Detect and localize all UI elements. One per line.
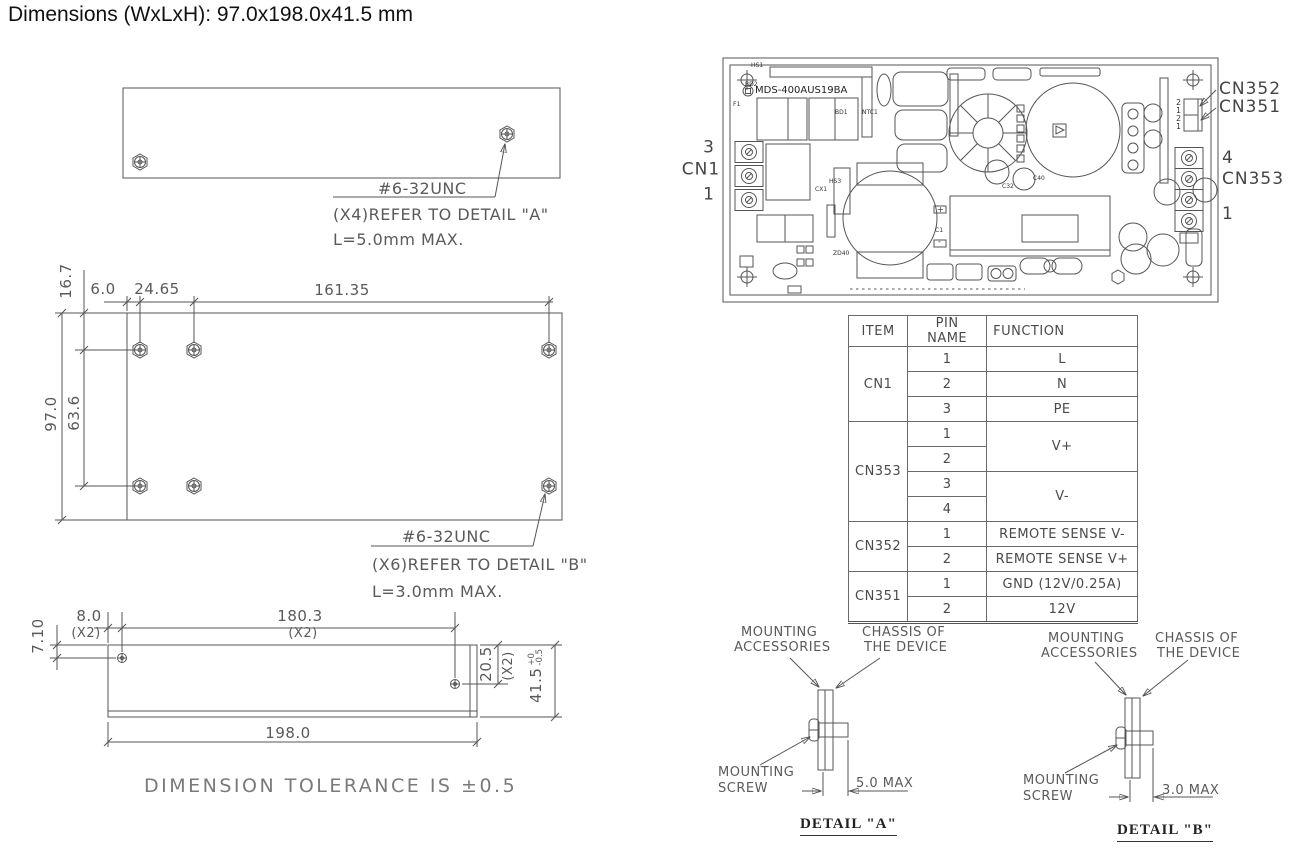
dim-qty-b: (X2) bbox=[288, 627, 317, 641]
pin-cell: 1 bbox=[908, 422, 987, 447]
pcb-label-cx1: CX1 bbox=[815, 187, 827, 194]
dim-hole-gap: 24.65 bbox=[134, 281, 179, 298]
function-cell: REMOTE SENSE V- bbox=[987, 522, 1138, 547]
pin-cell: 1 bbox=[908, 347, 987, 372]
cn351-label: CN351 bbox=[1219, 98, 1281, 117]
pcb-silkscreen-model: MDS-400AUS19BA bbox=[755, 85, 847, 96]
plan-view-drawing bbox=[55, 270, 562, 546]
top-view-refer-note: (X4)REFER TO DETAIL "A" bbox=[333, 206, 549, 224]
dim-hole-row-gap: 63.6 bbox=[66, 395, 83, 430]
pin-cell: 1 bbox=[908, 522, 987, 547]
dim-hole-top-offset: 16.7 bbox=[58, 263, 75, 298]
screw-hole-icon bbox=[542, 478, 556, 494]
detail-a-caption: DETAIL "A" bbox=[800, 816, 897, 836]
detail-a-max-dim: 5.0 MAX bbox=[856, 777, 913, 791]
detail-a-screw-line2: SCREW bbox=[718, 782, 768, 796]
detail-b-screw-line1: MOUNTING bbox=[1023, 774, 1099, 788]
pin-cell: 2 bbox=[908, 447, 987, 472]
col-header-function: FUNCTION bbox=[987, 316, 1138, 347]
cn1-label: CN1 bbox=[682, 161, 720, 180]
cn1-pin-bottom-label: 1 bbox=[703, 186, 715, 205]
pcb-label-bd2: BD2 bbox=[745, 82, 758, 89]
pcb-polarity-plus: + bbox=[937, 206, 944, 215]
detail-b-screw-line2: SCREW bbox=[1023, 790, 1073, 804]
detail-b-chassis-line1: CHASSIS OF bbox=[1155, 632, 1238, 646]
dim-screw-span: 180.3 bbox=[277, 608, 322, 625]
cn352-label: CN352 bbox=[1219, 80, 1281, 99]
plan-view-refer-note: (X6)REFER TO DETAIL "B" bbox=[372, 556, 588, 574]
detail-b-max-dim: 3.0 MAX bbox=[1162, 784, 1219, 798]
mounting-hole-icon bbox=[1183, 70, 1203, 90]
detail-b-chassis-line2: THE DEVICE bbox=[1157, 647, 1240, 661]
detail-a-chassis-line1: CHASSIS OF bbox=[862, 626, 945, 640]
screw-hole-icon bbox=[133, 154, 147, 170]
col-header-item: ITEM bbox=[849, 316, 908, 347]
item-cn352: CN352 bbox=[849, 522, 908, 572]
pin-cell: 2 bbox=[908, 547, 987, 572]
dim-qty-c: (X2) bbox=[502, 651, 516, 680]
dim-screw-top-offset: 7.10 bbox=[30, 618, 47, 653]
function-cell: PE bbox=[987, 397, 1138, 422]
function-cell: 12V bbox=[987, 597, 1138, 623]
pcb-label-f1: F1 bbox=[733, 102, 740, 109]
tolerance-note: DIMENSION TOLERANCE IS ±0.5 bbox=[144, 776, 517, 797]
col-header-pin-name: PIN NAME bbox=[908, 316, 987, 347]
detail-a-accessories-line1: MOUNTING bbox=[741, 626, 817, 640]
dim-body-height-tolerance: +0 -0.5 bbox=[528, 649, 544, 666]
dim-screw-height-offset: 20.5 bbox=[478, 646, 495, 681]
pin-function-table: ITEM PIN NAME FUNCTION CN1 1 L 2 N 3 PE … bbox=[848, 315, 1138, 624]
pin-cell: 3 bbox=[908, 397, 987, 422]
pin-cell: 2 bbox=[908, 372, 987, 397]
detail-b-accessories-line1: MOUNTING bbox=[1048, 632, 1124, 646]
pcb-label-c32: C32 bbox=[1002, 184, 1014, 191]
screw-hole-icon bbox=[187, 478, 201, 494]
item-cn1: CN1 bbox=[849, 347, 908, 422]
pcb-label-bd1: BD1 bbox=[835, 110, 848, 117]
pcb-label-hs1: HS1 bbox=[751, 63, 763, 70]
pcb-label-ntc1: NTC1 bbox=[862, 110, 878, 117]
screw-hole-icon bbox=[187, 342, 201, 358]
function-cell: V- bbox=[987, 472, 1138, 522]
pin-cell: 2 bbox=[908, 597, 987, 623]
cn353-pin-top-label: 4 bbox=[1222, 149, 1234, 168]
cn353-label: CN353 bbox=[1222, 170, 1284, 189]
detail-a-chassis-line2: THE DEVICE bbox=[864, 641, 947, 655]
top-view-thread-label: #6-32UNC bbox=[378, 180, 467, 198]
dim-body-height-value: 41.5 bbox=[528, 668, 545, 703]
dim-body-height: 41.5 +0 -0.5 bbox=[528, 649, 545, 703]
cn353-pin-bottom-label: 1 bbox=[1222, 205, 1234, 224]
cn1-pin-top-label: 3 bbox=[703, 139, 715, 158]
detail-a-screw-line1: MOUNTING bbox=[718, 766, 794, 780]
function-cell: V+ bbox=[987, 422, 1138, 472]
table-row: CN1 1 L bbox=[849, 347, 1138, 372]
top-view-length-note: L=5.0mm MAX. bbox=[333, 231, 464, 249]
dim-body-length: 198.0 bbox=[265, 725, 310, 742]
dim-screw-left-offset: 8.0 bbox=[76, 608, 101, 625]
tolerance-minus: -0.5 bbox=[536, 649, 544, 666]
plan-view-length-note: L=3.0mm MAX. bbox=[372, 583, 503, 601]
screw-hole-icon bbox=[451, 680, 460, 689]
table-row: CN353 1 V+ bbox=[849, 422, 1138, 447]
screw-hole-icon bbox=[542, 342, 556, 358]
header-pin-1b: 1 bbox=[1176, 123, 1181, 132]
pin-cell: 4 bbox=[908, 497, 987, 522]
pcb-label-hs3: HS3 bbox=[829, 179, 841, 186]
item-cn351: CN351 bbox=[849, 572, 908, 623]
dim-hole-span: 161.35 bbox=[314, 282, 370, 299]
detail-a-accessories-line2: ACCESSORIES bbox=[734, 641, 831, 655]
table-row: CN351 1 GND (12V/0.25A) bbox=[849, 572, 1138, 597]
function-cell: L bbox=[987, 347, 1138, 372]
pcb-components bbox=[740, 68, 1217, 293]
mounting-hole-icon bbox=[1183, 267, 1203, 287]
datasheet-dimensions-page: Dimensions (WxLxH): 97.0x198.0x41.5 mm #… bbox=[0, 0, 1301, 860]
detail-b-caption: DETAIL "B" bbox=[1117, 822, 1213, 842]
function-cell: REMOTE SENSE V+ bbox=[987, 547, 1138, 572]
pcb-polarity-minus: - bbox=[938, 238, 941, 247]
screw-hole-icon bbox=[118, 654, 127, 663]
detail-b-accessories-line2: ACCESSORIES bbox=[1041, 647, 1138, 661]
dim-hole-left-offset: 6.0 bbox=[90, 281, 115, 298]
pcb-label-c1: C1 bbox=[935, 228, 943, 235]
top-view-drawing bbox=[123, 88, 560, 197]
function-cell: GND (12V/0.25A) bbox=[987, 572, 1138, 597]
page-title: Dimensions (WxLxH): 97.0x198.0x41.5 mm bbox=[8, 3, 413, 26]
dim-body-width: 97.0 bbox=[43, 396, 60, 431]
pcb-label-c40: C40 bbox=[1033, 176, 1045, 183]
pcb-label-zd40: ZD40 bbox=[833, 251, 849, 258]
table-header-row: ITEM PIN NAME FUNCTION bbox=[849, 316, 1138, 347]
dim-qty-a: (X2) bbox=[71, 627, 100, 641]
screw-hole-icon bbox=[500, 126, 514, 142]
function-cell: N bbox=[987, 372, 1138, 397]
screw-hole-icon bbox=[133, 342, 147, 358]
pin-cell: 1 bbox=[908, 572, 987, 597]
item-cn353: CN353 bbox=[849, 422, 908, 522]
mounting-hole-icon bbox=[737, 267, 757, 287]
screw-hole-icon bbox=[133, 478, 147, 494]
pin-cell: 3 bbox=[908, 472, 987, 497]
table-row: CN352 1 REMOTE SENSE V- bbox=[849, 522, 1138, 547]
cn1-terminal-block bbox=[735, 142, 763, 211]
plan-view-thread-label: #6-32UNC bbox=[402, 528, 491, 546]
